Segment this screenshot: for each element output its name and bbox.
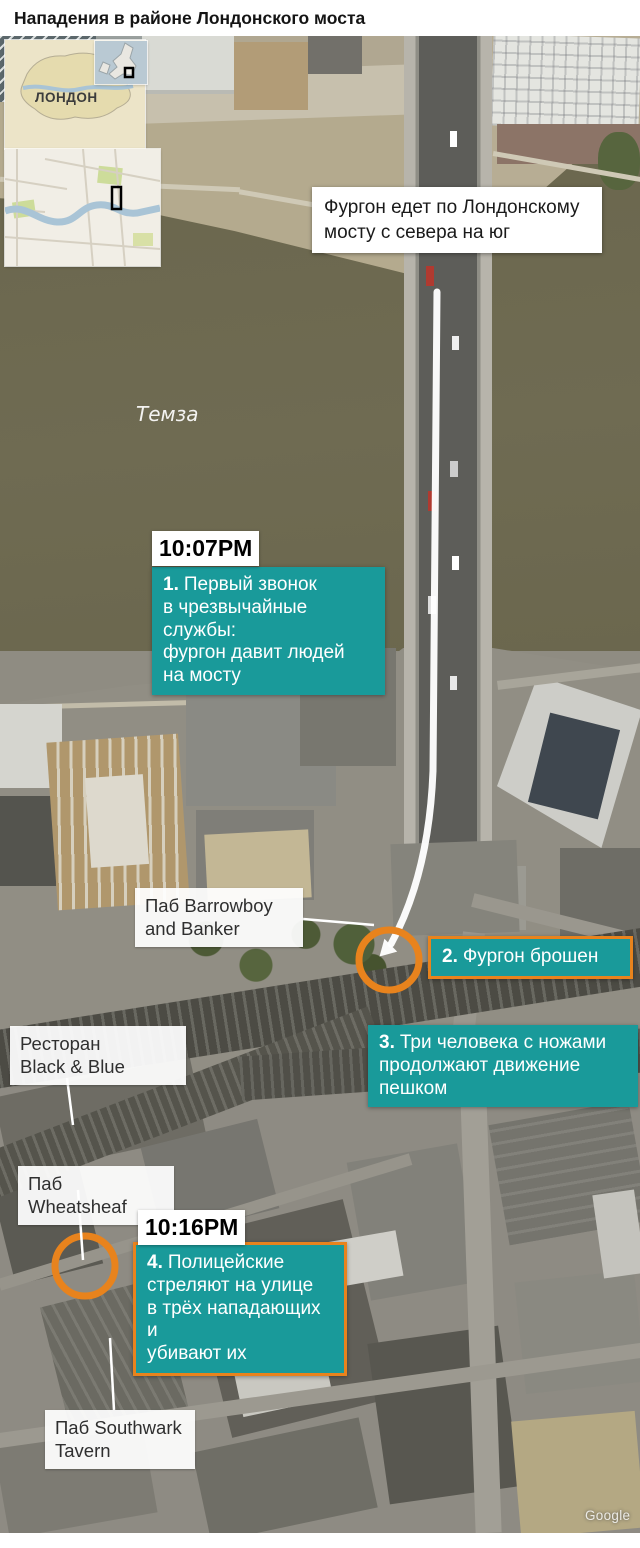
label-wheatsheaf-text: Паб Wheatsheaf <box>28 1173 127 1217</box>
event-1-callout: 1.Первый звонокв чрезвычайные службы:фур… <box>152 567 385 695</box>
river-label: Темза <box>136 402 199 426</box>
event-2-number: 2. <box>442 946 458 967</box>
inset-map-central-london <box>5 149 160 266</box>
event-1-text: Первый звонокв чрезвычайные службы:фурго… <box>163 574 345 686</box>
event-2-text: Фургон брошен <box>463 946 598 967</box>
footer-bar: B B C <box>0 1533 640 1548</box>
event-1-timestamp: 10:07PM <box>152 531 259 566</box>
route-callout: Фургон едет по Лондонскомумосту с севера… <box>312 187 602 253</box>
event-4-text: Полицейскиестреляют на улицев трёх напад… <box>147 1252 321 1364</box>
event-4-callout: 4.Полицейскиестреляют на улицев трёх нап… <box>133 1242 347 1376</box>
label-black-blue-restaurant: РесторанBlack & Blue <box>10 1026 186 1085</box>
label-southwark-text: Паб SouthwarkTavern <box>55 1417 182 1461</box>
label-black-blue-text: РесторанBlack & Blue <box>20 1033 125 1077</box>
infographic: Нападения в районе Лондонского моста <box>0 0 640 1548</box>
label-southwark-tavern-pub: Паб SouthwarkTavern <box>45 1410 195 1469</box>
map-attribution: Google <box>585 1508 630 1523</box>
event-2-callout: 2.Фургон брошен <box>428 936 633 979</box>
event-4-number: 4. <box>147 1252 163 1273</box>
central-london-streets <box>5 149 160 266</box>
event-1-number: 1. <box>163 574 179 595</box>
event-3-callout: 3.Три человека с ножамипродолжают движен… <box>368 1025 638 1107</box>
label-barrowboy-banker-pub: Паб Barrowboyand Banker <box>135 888 303 947</box>
event-3-text: Три человека с ножамипродолжают движение… <box>379 1032 606 1099</box>
london-label: ЛОНДОН <box>35 90 98 105</box>
location-marker-uk <box>125 68 133 77</box>
route-callout-text: Фургон едет по Лондонскомумосту с севера… <box>324 197 579 243</box>
page-title: Нападения в районе Лондонского моста <box>0 0 640 29</box>
label-barrowboy-text: Паб Barrowboyand Banker <box>145 895 273 939</box>
uk-shape <box>95 41 147 84</box>
event-3-number: 3. <box>379 1032 395 1053</box>
event-4-timestamp: 10:16PM <box>138 1210 245 1245</box>
inset-map-uk <box>95 41 147 84</box>
map-area: ЛОНДОН Ф <box>0 36 640 1533</box>
header: Нападения в районе Лондонского моста <box>0 0 640 36</box>
